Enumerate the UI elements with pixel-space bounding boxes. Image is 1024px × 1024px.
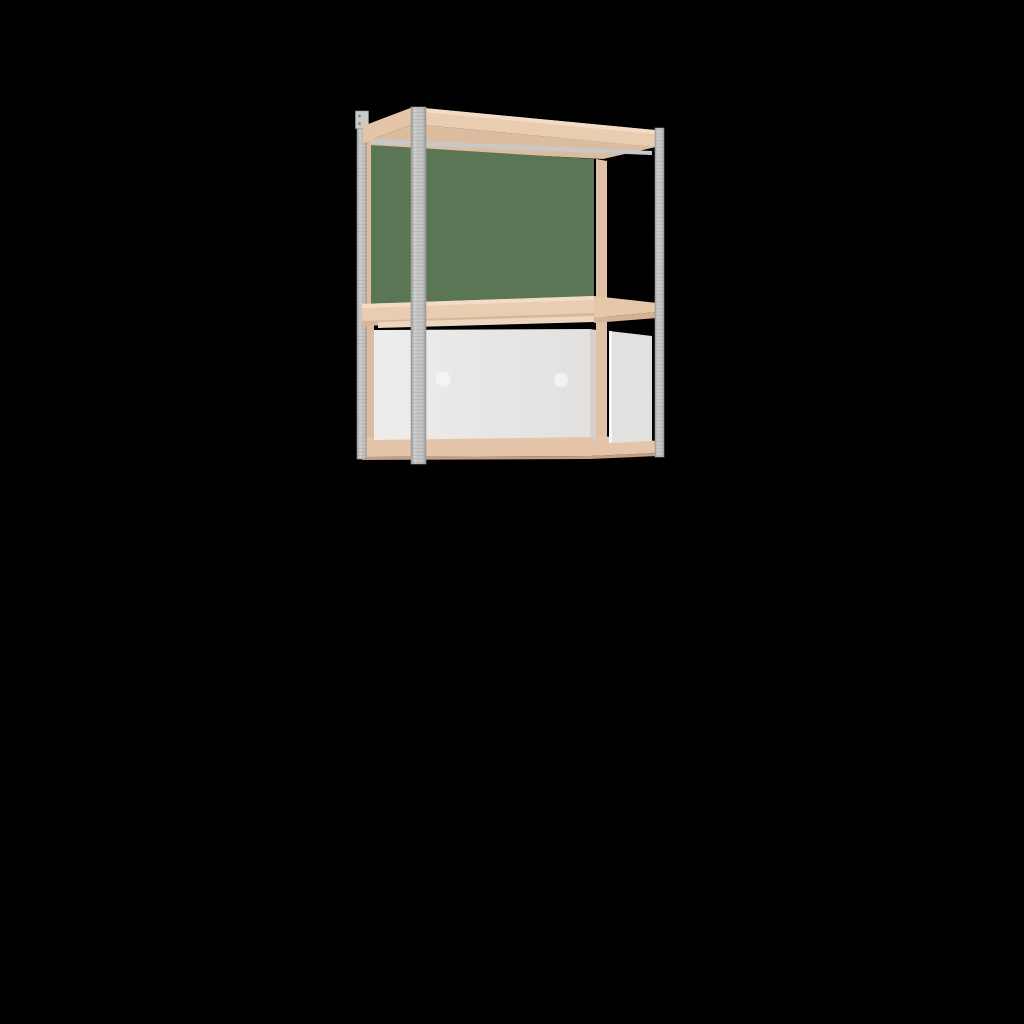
wall-bracket-hole-bottom xyxy=(358,122,361,125)
render-canvas xyxy=(0,0,1024,1024)
side-panel xyxy=(609,331,652,443)
finger-hole-left xyxy=(436,372,451,387)
front-left-post-texture xyxy=(411,107,426,464)
furniture-parts-group xyxy=(356,107,665,464)
wall-bracket-hole-top xyxy=(358,115,361,118)
side-panel-edge-highlight xyxy=(609,331,612,443)
back-panel-green xyxy=(371,145,594,305)
finger-hole-right xyxy=(554,373,568,387)
furniture-render-svg xyxy=(0,0,1024,1024)
rear-left-post-texture xyxy=(357,114,367,459)
front-right-post-texture xyxy=(655,128,664,457)
panel-post-gap-shadow xyxy=(590,329,596,442)
